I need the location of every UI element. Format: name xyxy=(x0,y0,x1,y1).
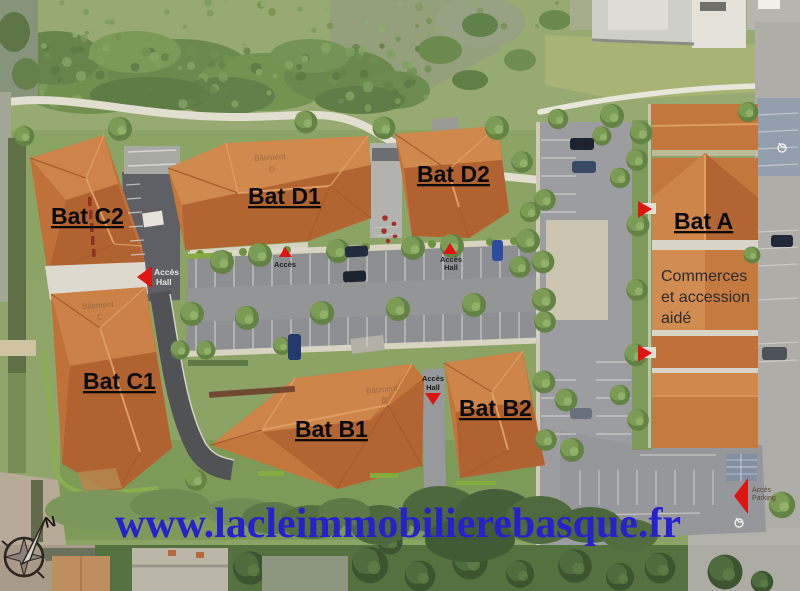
svg-text:Bat A: Bat A xyxy=(674,208,733,234)
svg-text:Bâtiment: Bâtiment xyxy=(254,152,287,163)
svg-text:Accès: Accès xyxy=(154,267,179,277)
svg-text:Parking: Parking xyxy=(752,495,776,502)
svg-text:Bat C2: Bat C2 xyxy=(51,203,124,229)
svg-text:Bat D2: Bat D2 xyxy=(417,161,490,187)
svg-text:Accès: Accès xyxy=(752,487,772,494)
svg-text:Hall: Hall xyxy=(444,263,458,272)
svg-text:Bat C1: Bat C1 xyxy=(83,368,156,394)
svg-text:D: D xyxy=(269,165,275,174)
svg-text:Bat B2: Bat B2 xyxy=(459,395,532,421)
svg-text:aidé: aidé xyxy=(661,310,691,327)
svg-text:Hall: Hall xyxy=(156,277,172,287)
svg-text:Accès: Accès xyxy=(422,374,444,383)
svg-text:Bat D1: Bat D1 xyxy=(248,183,321,209)
svg-text:B: B xyxy=(381,396,386,405)
svg-text:www.lacleimmobilierebasque.fr: www.lacleimmobilierebasque.fr xyxy=(115,501,681,547)
svg-text:et accession: et accession xyxy=(661,289,750,306)
svg-text:C: C xyxy=(97,313,103,322)
svg-text:Commerces: Commerces xyxy=(661,268,747,285)
svg-text:Hall: Hall xyxy=(426,383,440,392)
svg-text:Bat B1: Bat B1 xyxy=(295,416,368,442)
svg-text:Accès: Accès xyxy=(274,260,296,269)
